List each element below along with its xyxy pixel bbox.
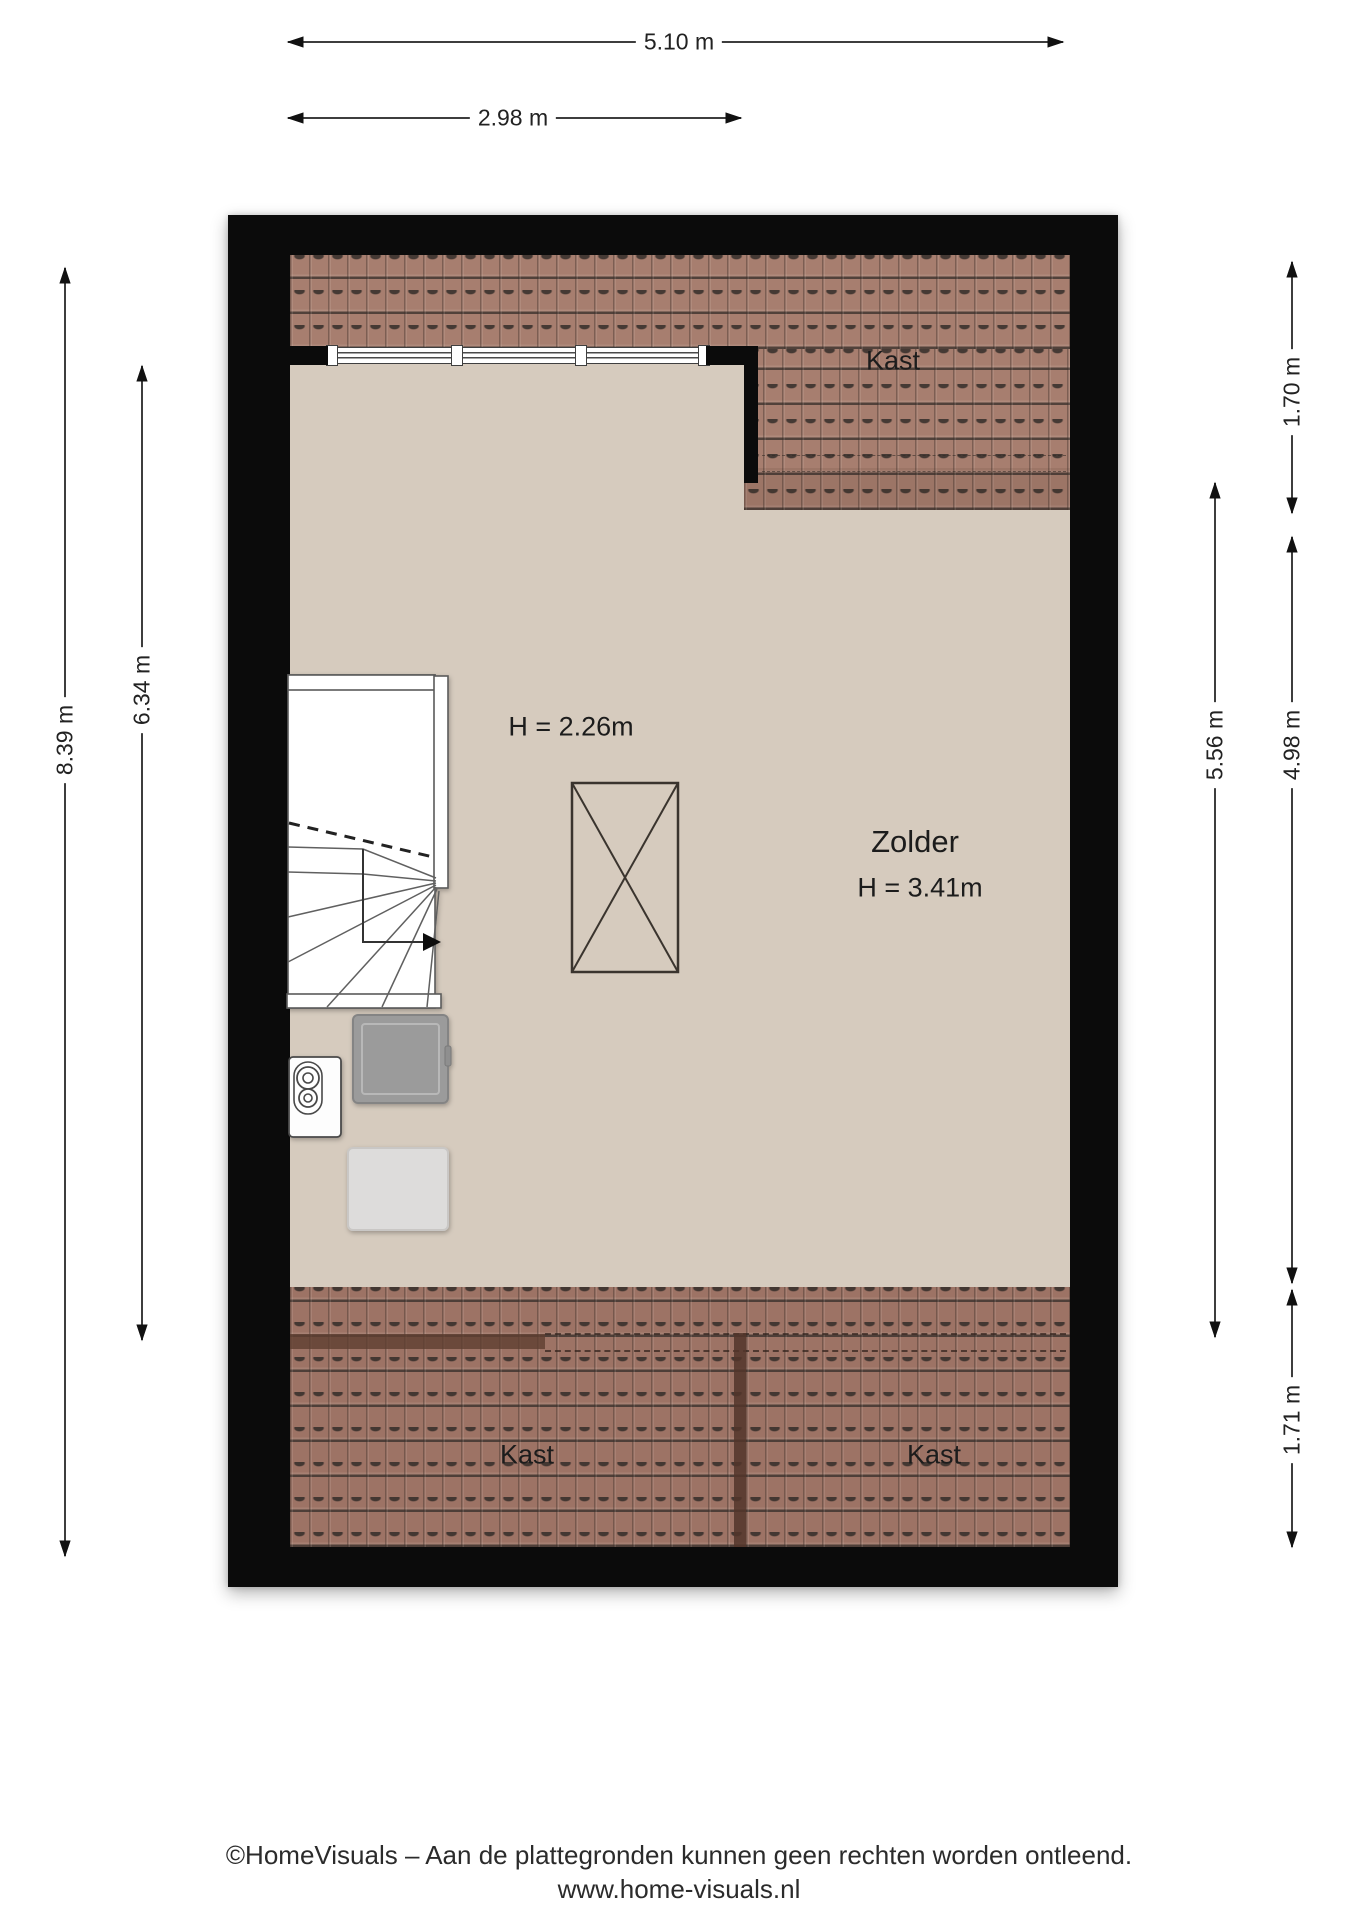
dim-right-top-label: 1.70 m (1279, 349, 1306, 435)
roof-tiles-top (290, 255, 1070, 349)
dormer-window (326, 347, 710, 364)
window-mullion (575, 345, 587, 366)
dim-right-inner-label: 5.56 m (1202, 702, 1229, 788)
knee-wall-dashed-line-top (762, 455, 1066, 472)
roof-shade-overlay (744, 468, 1070, 510)
knee-wall-dashed-line-bottom (545, 1333, 1066, 1352)
dim-width-total-label: 5.10 m (636, 29, 722, 56)
floorplan-page: 5.10 m 2.98 m 8.39 m 6.34 m 1.70 m 5.56 … (0, 0, 1358, 1920)
kast-bottom-right-label: Kast (907, 1440, 961, 1471)
roof-tiles-bottom (290, 1287, 1070, 1547)
footer: ©HomeVisuals – Aan de plattegronden kunn… (226, 1838, 1132, 1906)
kast-corner-wall (744, 346, 758, 483)
room-height-label: H = 3.41m (857, 873, 982, 904)
window-mullion (451, 345, 463, 366)
footer-website: www.home-visuals.nl (226, 1872, 1132, 1906)
kast-divider-wall (734, 1333, 746, 1547)
dim-right-mid-label: 4.98 m (1279, 702, 1306, 788)
low-ceiling-height-label: H = 2.26m (508, 712, 633, 743)
kast-top-label: Kast (866, 346, 920, 377)
kast-bottom-left-label: Kast (500, 1440, 554, 1471)
knee-wall-solid-line-bottom (290, 1334, 545, 1349)
room-name-label: Zolder (871, 824, 959, 860)
dim-height-room-label: 6.34 m (129, 647, 156, 733)
dim-right-bottom-label: 1.71 m (1279, 1377, 1306, 1463)
dim-height-total-label: 8.39 m (52, 697, 79, 783)
dim-width-room-label: 2.98 m (470, 105, 556, 132)
wall-stub-left-of-window (290, 346, 328, 365)
footer-disclaimer: ©HomeVisuals – Aan de plattegronden kunn… (226, 1838, 1132, 1872)
